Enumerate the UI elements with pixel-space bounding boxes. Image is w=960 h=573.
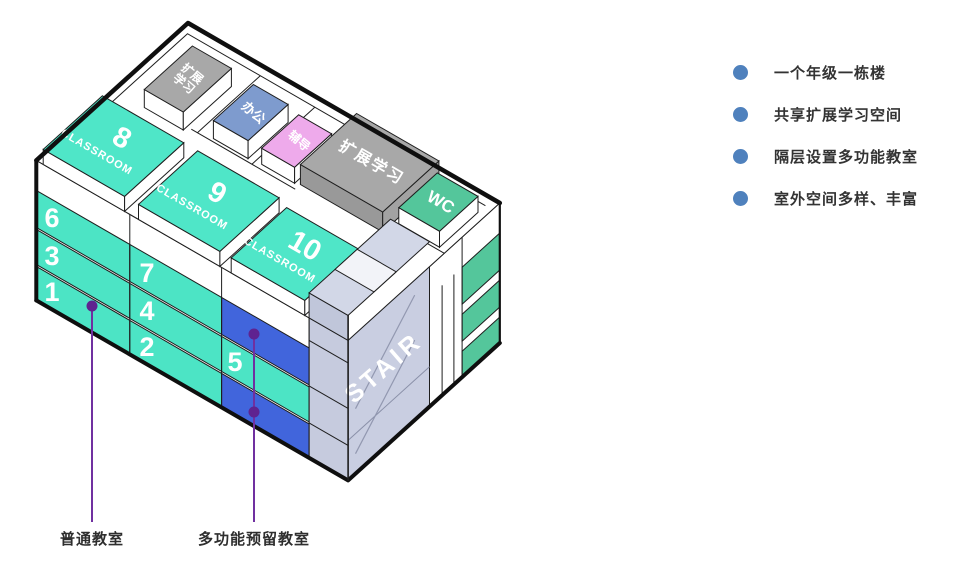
legend-item-label: 室外空间多样、丰富 [774,188,918,209]
floor-number-7: 7 [139,258,154,288]
bullet-icon [733,149,748,164]
multifunction-classroom-label: 多功能预留教室 [198,528,310,549]
bullet-icon [733,65,748,80]
legend-item-2: 共享扩展学习空间 [733,104,918,125]
legend-item-1: 一个年级一栋楼 [733,62,918,83]
feature-legend: 一个年级一栋楼 共享扩展学习空间 隔层设置多功能教室 室外空间多样、丰富 [733,62,918,209]
legend-item-4: 室外空间多样、丰富 [733,188,918,209]
floor-number-1: 1 [44,277,59,307]
bullet-icon [733,191,748,206]
building-axonometric-diagram: 6 3 1 7 4 2 5 STAIR [0,0,560,573]
floor-number-4: 4 [139,296,154,326]
multifunction-classroom-marker-dot-top [249,329,260,340]
floor-number-5: 5 [227,347,242,377]
legend-item-label: 一个年级一栋楼 [774,62,886,83]
slide: 6 3 1 7 4 2 5 STAIR [0,0,960,573]
floor-number-2: 2 [139,332,154,362]
legend-item-label: 隔层设置多功能教室 [774,146,918,167]
ordinary-classroom-marker-dot [87,301,98,312]
legend-item-3: 隔层设置多功能教室 [733,146,918,167]
ordinary-classroom-label: 普通教室 [60,528,124,549]
floor-number-3: 3 [44,241,59,271]
multifunction-classroom-marker-dot-bottom [249,407,260,418]
legend-item-label: 共享扩展学习空间 [774,104,902,125]
floor-number-6: 6 [44,203,59,233]
bullet-icon [733,107,748,122]
